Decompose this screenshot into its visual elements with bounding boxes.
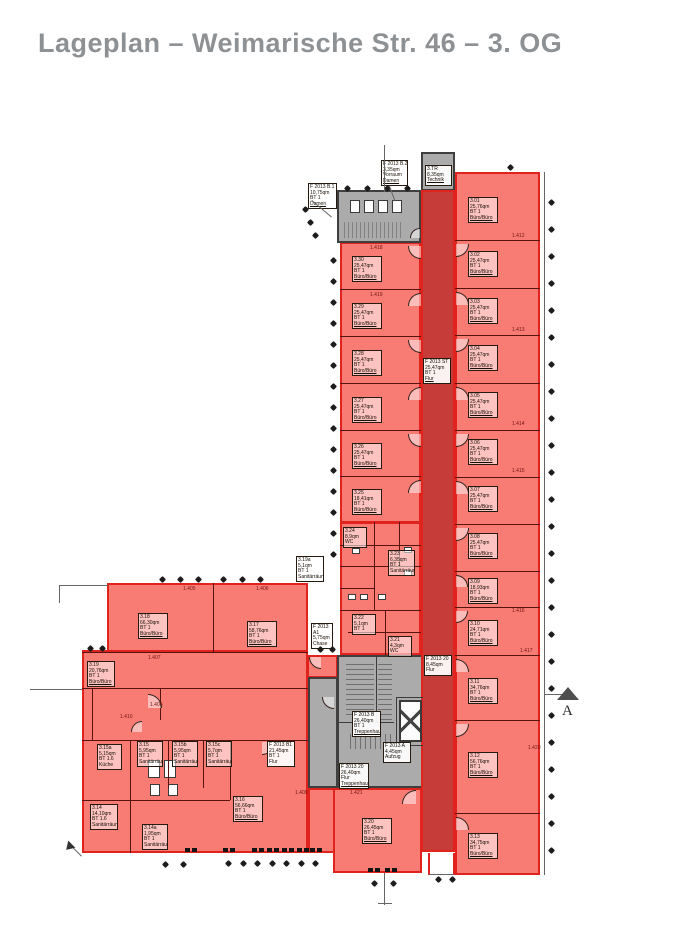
dimension-text: 1.405: [183, 586, 196, 592]
room-label: 3.1758,76qmBT 1Büro/Büro: [247, 621, 277, 647]
wall-tick: [392, 868, 397, 872]
wall-tick: [282, 848, 287, 852]
plan-line: [59, 585, 60, 603]
room-label: 3.3025,47qmBT 1Büro/Büro: [352, 256, 382, 282]
room-label: 3.0918,93qmBT 1Büro/Büro: [468, 578, 498, 604]
survey-dot: [330, 299, 337, 306]
survey-dot: [548, 793, 555, 800]
wall-tick: [252, 848, 257, 852]
survey-dot: [257, 576, 264, 583]
wall-tick: [304, 848, 309, 852]
left-wing-right-strip: [308, 788, 335, 853]
wall: [168, 740, 169, 788]
plan-line: [30, 689, 82, 690]
wall: [92, 688, 93, 740]
cell-feature: [378, 594, 386, 600]
dimension-text: 1.415: [512, 468, 525, 474]
survey-dot: [548, 388, 555, 395]
survey-dot: [507, 164, 514, 171]
room-label: 3.2825,47qmBT 1Büro/Büro: [352, 350, 382, 376]
wall-tick: [310, 848, 315, 852]
dimension-text: 1.418: [370, 245, 383, 251]
plan-line: [384, 873, 385, 905]
survey-dot: [312, 860, 319, 867]
cell-feature: [150, 784, 160, 796]
wall: [374, 522, 375, 610]
hatchv-feature: [344, 222, 402, 238]
wall: [213, 583, 214, 653]
survey-dot: [225, 860, 232, 867]
survey-dot: [548, 658, 555, 665]
dimension-text: 1.416: [512, 608, 525, 614]
dimension-text: 1.421: [350, 790, 363, 796]
survey-dot: [371, 880, 378, 887]
wall-tick: [385, 868, 390, 872]
survey-dot: [548, 334, 555, 341]
survey-dot: [330, 467, 337, 474]
survey-dot: [548, 469, 555, 476]
plan-line: [60, 585, 108, 586]
room-label: 3.0225,47qmBT 1Büro/Büro: [468, 251, 498, 277]
survey-dot: [548, 307, 555, 314]
wall: [340, 430, 421, 431]
survey-dot: [548, 631, 555, 638]
wall: [340, 476, 421, 477]
survey-dot: [238, 576, 245, 583]
survey-dot: [449, 876, 456, 883]
elevator-shaft: [399, 700, 422, 742]
survey-dot: [162, 861, 169, 868]
room-label: 3.1414,10qmBT 1.6Sanitärräume: [90, 804, 118, 830]
survey-dot: [548, 685, 555, 692]
section-marker-letter: A: [562, 703, 573, 720]
wall: [130, 740, 131, 800]
survey-dot: [435, 876, 442, 883]
wall-tick: [230, 848, 235, 852]
survey-dot: [548, 550, 555, 557]
survey-dot: [254, 860, 261, 867]
survey-dot: [548, 523, 555, 530]
dimension-text: 1.414: [512, 421, 525, 427]
survey-dot: [548, 199, 555, 206]
room-label: 3.236,35qmBT 1Sanitärräume: [388, 550, 415, 576]
wall-tick: [185, 848, 190, 852]
wall-tick: [259, 848, 264, 852]
survey-dot: [307, 219, 314, 226]
wall: [396, 697, 397, 745]
survey-dot: [548, 712, 555, 719]
room-label: 3.2518,41qmBT 1Büro/Büro: [352, 489, 382, 515]
survey-dot: [297, 860, 304, 867]
wall: [455, 383, 540, 384]
corridor-notch: [428, 853, 455, 875]
wall: [340, 588, 375, 589]
wall-tick: [223, 848, 228, 852]
wall-tick: [297, 848, 302, 852]
wall-tick: [267, 848, 272, 852]
room-label: 3.1920,76qmBT 1Büro/Büro: [87, 661, 115, 687]
wall: [82, 800, 230, 801]
wall-tick: [317, 848, 322, 852]
cell-feature: [348, 594, 356, 600]
room-label: F 2013A15,75qmChase: [311, 623, 333, 649]
survey-dot: [548, 415, 555, 422]
survey-dot: [330, 278, 337, 285]
wall: [340, 383, 421, 384]
room-label: 3.214,3qmWC: [388, 636, 412, 657]
section-marker-a-icon: [557, 687, 579, 700]
room-label: 3.0725,47qmBT 1Büro/Büro: [468, 486, 498, 512]
wall: [340, 610, 421, 611]
wall-tick: [375, 868, 380, 872]
room-label: 3.15b5,95qmBT 1Sanitärräume: [172, 741, 198, 767]
plan-line: [544, 172, 545, 875]
room-label: 3.0425,47qmBT 1Büro/Büro: [468, 345, 498, 371]
room-label: 3.0825,47qmBT 1Büro/Büro: [468, 533, 498, 559]
wall: [455, 288, 540, 289]
cell-feature: [364, 200, 374, 213]
dimension-text: 1.408: [150, 702, 163, 708]
cell-feature: [168, 784, 178, 796]
floor-plan: 3.0125,76qmBT 1Büro/Büro3.0225,47qmBT 1B…: [0, 0, 700, 950]
cell-feature: [352, 548, 360, 554]
survey-dot: [330, 446, 337, 453]
dimension-text: 1.420: [528, 745, 541, 751]
room-label: 3.1024,71qmBT 1Büro/Büro: [468, 620, 498, 646]
survey-dot: [330, 488, 337, 495]
wall: [455, 571, 540, 572]
room-label: 3.TR8,35qmTechnik: [425, 165, 452, 186]
survey-dot: [268, 860, 275, 867]
cell-feature: [350, 200, 360, 213]
survey-dot: [548, 496, 555, 503]
room-label: F 2013 A4,45qmAufzug: [383, 742, 411, 763]
survey-dot: [220, 576, 227, 583]
survey-dot: [195, 576, 202, 583]
room-label: 3.2725,47qmBT 1Büro/Büro: [352, 397, 382, 423]
dimension-text: 1.410: [120, 714, 133, 720]
wall: [130, 800, 131, 853]
survey-dot: [548, 739, 555, 746]
wall: [203, 740, 204, 788]
survey-dot: [330, 362, 337, 369]
room-label: 3.1134,76qmBT 1Büro/Büro: [468, 678, 498, 704]
wall: [455, 720, 540, 721]
wall: [340, 336, 421, 337]
corner-arrow-icon: [63, 841, 76, 854]
dimension-text: 1.417: [520, 648, 533, 654]
corridor: [421, 190, 455, 852]
wall: [340, 289, 421, 290]
room-label: 3.15a5,15qmBT 1.6Küche: [97, 744, 122, 770]
survey-dot: [548, 280, 555, 287]
room-label: 3.1656,66qmBT 1Büro/Büro: [233, 796, 263, 822]
survey-dot: [390, 880, 397, 887]
cell-feature: [378, 200, 388, 213]
survey-dot: [180, 861, 187, 868]
wall: [82, 652, 308, 653]
room-label: 3.2925,47qmBT 1Büro/Büro: [352, 303, 382, 329]
room-label: 3.0325,47qmBT 1Büro/Büro: [468, 298, 498, 324]
cell-feature: [360, 594, 368, 600]
wall: [455, 335, 540, 336]
dimension-text: 1.406: [256, 586, 269, 592]
wall: [455, 655, 540, 656]
room-label: F 2013 ST25,47qmBT 1Flur: [423, 358, 451, 384]
survey-dot: [548, 766, 555, 773]
survey-dot: [330, 320, 337, 327]
wall: [455, 607, 540, 608]
dimension-text: 1.413: [512, 327, 525, 333]
wall-tick: [274, 848, 279, 852]
survey-dot: [330, 404, 337, 411]
wall-tick: [289, 848, 294, 852]
wall: [455, 240, 540, 241]
survey-dot: [329, 646, 336, 653]
survey-dot: [548, 820, 555, 827]
plan-line: [378, 903, 392, 904]
room-label: 3.1866,30qmBT 1Büro/Büro: [138, 613, 168, 639]
wall: [455, 477, 540, 478]
stair-core-left: [308, 677, 338, 788]
wall: [82, 688, 308, 689]
wall: [455, 430, 540, 431]
room-label: F 2013 B121,45qmBT 1Flur: [267, 741, 295, 767]
room-label: F 2013 B.23,35qmVorraumDamen: [381, 160, 408, 186]
survey-dot: [548, 604, 555, 611]
wall-tick: [368, 868, 373, 872]
survey-dot: [330, 257, 337, 264]
dimension-text: 1.419: [370, 292, 383, 298]
room-label: 3.225,1qmBT 1: [352, 614, 376, 635]
treads-h-feature: [346, 664, 374, 716]
room-label: 3.1334,75qmBT 1Büro/Büro: [468, 833, 498, 859]
room-label: 3.1256,76qmBT 1Büro/Büro: [468, 752, 498, 778]
exposé-page: { "title": "Lageplan – Weimarische Str. …: [0, 0, 700, 950]
room-label: 3.2625,47qmBT 1Büro/Büro: [352, 443, 382, 469]
room-label: 3.19a5,1qmBT 1Sanitärräume: [296, 556, 324, 582]
dimension-text: 1.412: [512, 233, 525, 239]
survey-dot: [330, 383, 337, 390]
room-label: 3.0125,76qmBT 1Büro/Büro: [468, 197, 498, 223]
survey-dot: [239, 860, 246, 867]
survey-dot: [177, 576, 184, 583]
dimension-text: 1.407: [148, 655, 161, 661]
wall: [385, 610, 386, 655]
room-label: 3.0625,47qmBT 1Büro/Büro: [468, 439, 498, 465]
room-label: F 2013 2026,40qmFlurTreppenhaus: [339, 763, 369, 789]
room-label: 3.248,9qmWC: [343, 527, 367, 548]
survey-dot: [548, 577, 555, 584]
survey-dot: [159, 576, 166, 583]
cell-feature: [392, 200, 402, 213]
plan-line: [384, 145, 385, 192]
survey-dot: [548, 442, 555, 449]
room-label: F 2013 B26,40qmBT 1Treppenhaus: [352, 711, 381, 737]
survey-dot: [330, 425, 337, 432]
room-label: 3.15c5,7qmBT 1Sanitärräume: [206, 741, 232, 767]
wall: [396, 697, 423, 698]
survey-dot: [330, 530, 337, 537]
survey-dot: [548, 847, 555, 854]
room-label: 3.2026,45qmBT 1Büro/Büro: [362, 818, 392, 844]
survey-dot: [330, 341, 337, 348]
wall-tick: [192, 848, 197, 852]
survey-dot: [548, 226, 555, 233]
room-label: F 2013 208,45qmFlur: [424, 655, 452, 676]
survey-dot: [548, 253, 555, 260]
wall: [455, 813, 540, 814]
survey-dot: [283, 860, 290, 867]
room-label: F 2013 B.110,75qmBT 1Damen: [308, 183, 337, 209]
dimension-text: 1.409: [295, 790, 308, 796]
room-label: 3.155,95qmBT 1Sanitärräume: [137, 741, 163, 767]
survey-dot: [548, 361, 555, 368]
survey-dot: [330, 551, 337, 558]
survey-dot: [312, 232, 319, 239]
survey-dot: [330, 509, 337, 516]
room-label: 3.0525,47qmBT 1Büro/Büro: [468, 392, 498, 418]
wall: [455, 524, 540, 525]
room-label: 3.14a1,95qmBT 1Sanitärräume: [142, 824, 168, 850]
